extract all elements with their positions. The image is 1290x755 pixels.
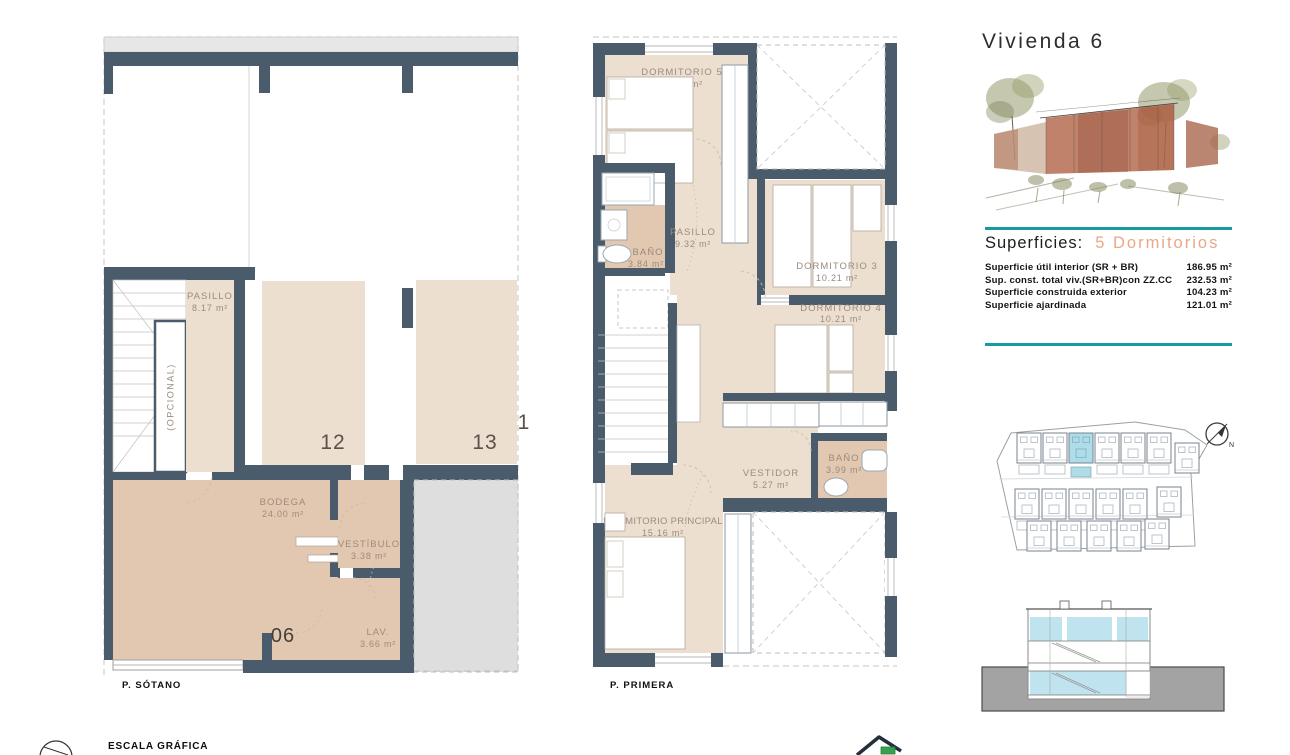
dorm5-label: DORMITORIO 5 bbox=[641, 67, 723, 78]
superficie-label: Superficie ajardinada bbox=[985, 300, 1086, 313]
section-drawing bbox=[972, 583, 1232, 718]
sink bbox=[862, 450, 887, 471]
primera-pasillo-label: PASILLO bbox=[670, 227, 716, 238]
lav-area: 3.66 m² bbox=[360, 639, 396, 649]
dorm4-label: DORMITORIO 4 bbox=[800, 303, 882, 314]
bano2-area: 3.99 m² bbox=[826, 465, 862, 475]
primera-pasillo-area: 9.32 m² bbox=[675, 239, 711, 249]
superficie-row: Superficie útil interior (SR + BR) 186.9… bbox=[985, 262, 1232, 275]
dorm3-label: DORMITORIO 3 bbox=[796, 261, 878, 272]
superficie-label: Superficie útil interior (SR + BR) bbox=[985, 262, 1138, 275]
bano2-label: BAÑO bbox=[829, 453, 860, 464]
exterior-gray-area bbox=[414, 480, 518, 672]
superficie-value: 104.23 m² bbox=[1186, 287, 1232, 300]
house-logo-icon bbox=[845, 733, 915, 755]
superficie-row: Sup. const. total viv.(SR+BR)con ZZ.CC 2… bbox=[985, 275, 1232, 288]
parking-partial-label: 1 bbox=[518, 411, 530, 434]
superficie-value: 232.53 m² bbox=[1186, 275, 1232, 288]
compass-north-label: N bbox=[1229, 442, 1234, 449]
toilet bbox=[824, 478, 848, 496]
superficies-subtitle: 5 Dormitorios bbox=[1095, 234, 1219, 253]
opcional-label: (OPCIONAL) bbox=[166, 363, 176, 431]
site-plan: N bbox=[985, 413, 1240, 573]
teal-divider-top bbox=[985, 227, 1232, 230]
parking-13-label: 13 bbox=[472, 431, 497, 454]
void-top bbox=[757, 45, 885, 169]
basement-plan-drawing: (OPCIONAL) PASILLO 8.17 m² 12 13 1 bbox=[100, 35, 530, 683]
superficie-label: Superficie construida exterior bbox=[985, 287, 1127, 300]
closet bbox=[819, 402, 887, 426]
lav-label: LAV. bbox=[366, 627, 389, 638]
void-bottom bbox=[753, 512, 897, 657]
superficie-value: 186.95 m² bbox=[1186, 262, 1232, 275]
primera-caption: P. PRIMERA bbox=[610, 680, 674, 691]
superficie-value: 121.01 m² bbox=[1186, 300, 1232, 313]
first-floor-plan-drawing: DORMITORIO 5 10.80 m² BAÑO 3.84 m² PASIL… bbox=[585, 35, 930, 683]
superficies-heading: Superficies: bbox=[985, 234, 1083, 253]
teal-divider-bottom bbox=[985, 343, 1232, 346]
superficie-row: Superficie ajardinada 121.01 m² bbox=[985, 300, 1232, 313]
sotano-caption: P. SÓTANO bbox=[122, 680, 181, 691]
plan-sheet: (OPCIONAL) PASILLO 8.17 m² 12 13 1 bbox=[0, 0, 1290, 755]
superficie-row: Superficie construida exterior 104.23 m² bbox=[985, 287, 1232, 300]
vestibulo-area: 3.38 m² bbox=[351, 551, 387, 561]
parking-spaces: 12 13 1 bbox=[234, 280, 530, 480]
highlighted-unit bbox=[1069, 433, 1093, 477]
sketch-ground bbox=[986, 175, 1224, 210]
vestidor-label: VESTIDOR bbox=[743, 468, 800, 479]
sotano-lavadero: LAV. 3.66 m² bbox=[338, 578, 400, 660]
dorm4-area: 10.21 m² bbox=[820, 314, 862, 324]
vestidor-area: 5.27 m² bbox=[753, 480, 789, 490]
sotano-top-band bbox=[104, 37, 518, 273]
house-sketch bbox=[978, 60, 1232, 218]
pasillo-area: 8.17 m² bbox=[192, 303, 228, 313]
section-building bbox=[1026, 601, 1152, 699]
scale-compass-icon bbox=[28, 738, 98, 755]
sotano-vestibulo: VESTÍBULO 3.38 m² bbox=[338, 480, 400, 578]
bathtub bbox=[602, 173, 654, 205]
bano1-label: BAÑO bbox=[633, 247, 664, 258]
vestibulo-label: VESTÍBULO bbox=[338, 539, 400, 550]
bodega-area: 24.00 m² bbox=[262, 509, 304, 519]
primera-bottom-wall bbox=[593, 653, 897, 667]
toilet bbox=[603, 245, 631, 263]
superficies-block: Superficies: 5 Dormitorios Superficie út… bbox=[985, 234, 1232, 313]
bodega-label: BODEGA bbox=[260, 497, 307, 508]
superficie-label: Sup. const. total viv.(SR+BR)con ZZ.CC bbox=[985, 275, 1172, 288]
principal-area: 15.16 m² bbox=[642, 528, 684, 538]
bano1-area: 3.84 m² bbox=[628, 259, 664, 269]
sotano-pasillo: PASILLO 8.17 m² bbox=[186, 280, 245, 472]
pasillo-label: PASILLO bbox=[187, 291, 233, 302]
sink bbox=[601, 210, 627, 240]
escala-grafica-label: ESCALA GRÁFICA bbox=[108, 741, 208, 752]
bed bbox=[775, 325, 827, 393]
parking-12-label: 12 bbox=[320, 431, 345, 454]
dorm3-area: 10.21 m² bbox=[816, 273, 858, 283]
section-top-floor-highlight bbox=[1030, 617, 1148, 641]
unit-number-label: 06 bbox=[271, 625, 295, 647]
page-title: Vivienda 6 bbox=[982, 30, 1105, 54]
compass-icon: N bbox=[1206, 423, 1234, 449]
